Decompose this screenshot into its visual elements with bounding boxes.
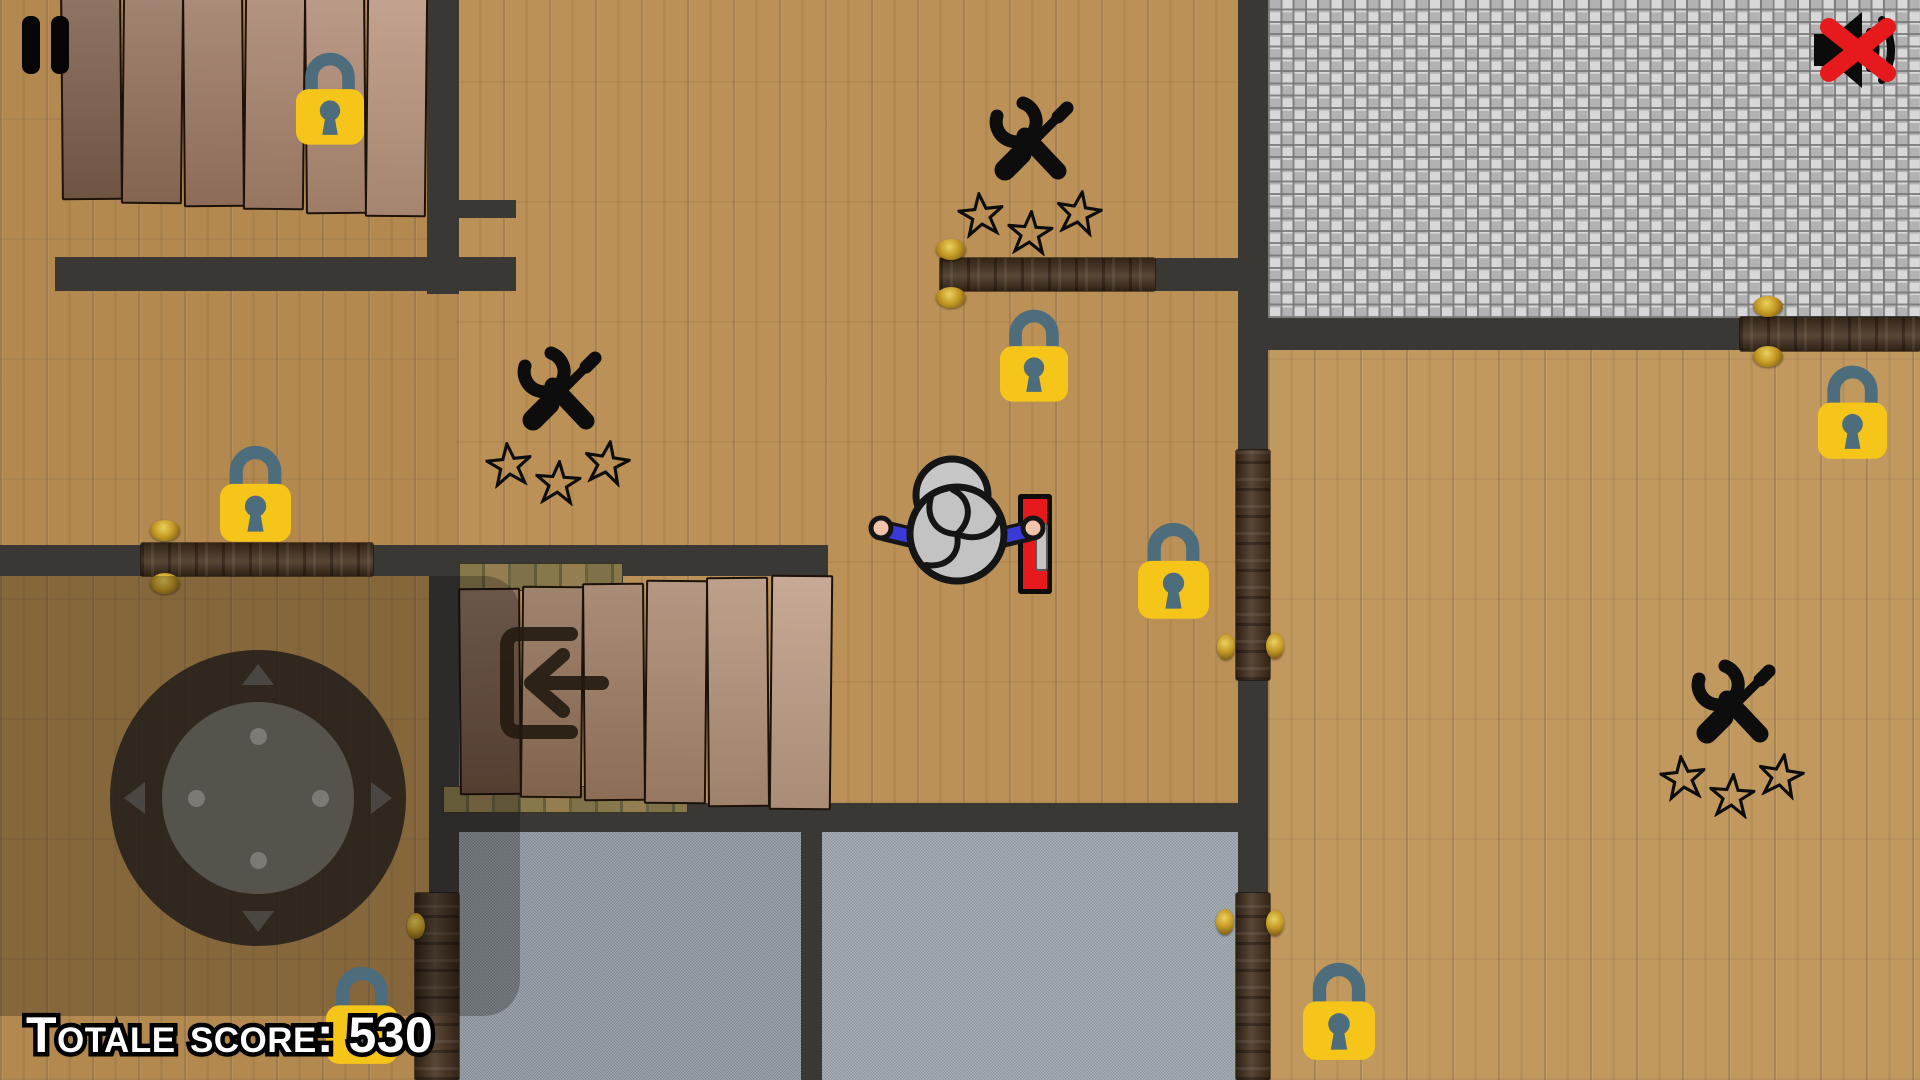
total-score: Totale score: 530 Totale score: 530 — [26, 1008, 433, 1063]
hud-layer: Totale score: 530 Totale score: 530 — [0, 0, 1920, 1080]
game-screen: Totale score: 530 Totale score: 530 — [0, 0, 1920, 1080]
pause-icon — [22, 16, 40, 74]
muted-audio-icon — [1808, 6, 1908, 94]
mute-button[interactable] — [1808, 6, 1908, 94]
pause-icon — [51, 16, 69, 74]
pause-button[interactable] — [14, 10, 80, 82]
score-text: Totale score: 530 — [26, 1007, 433, 1063]
